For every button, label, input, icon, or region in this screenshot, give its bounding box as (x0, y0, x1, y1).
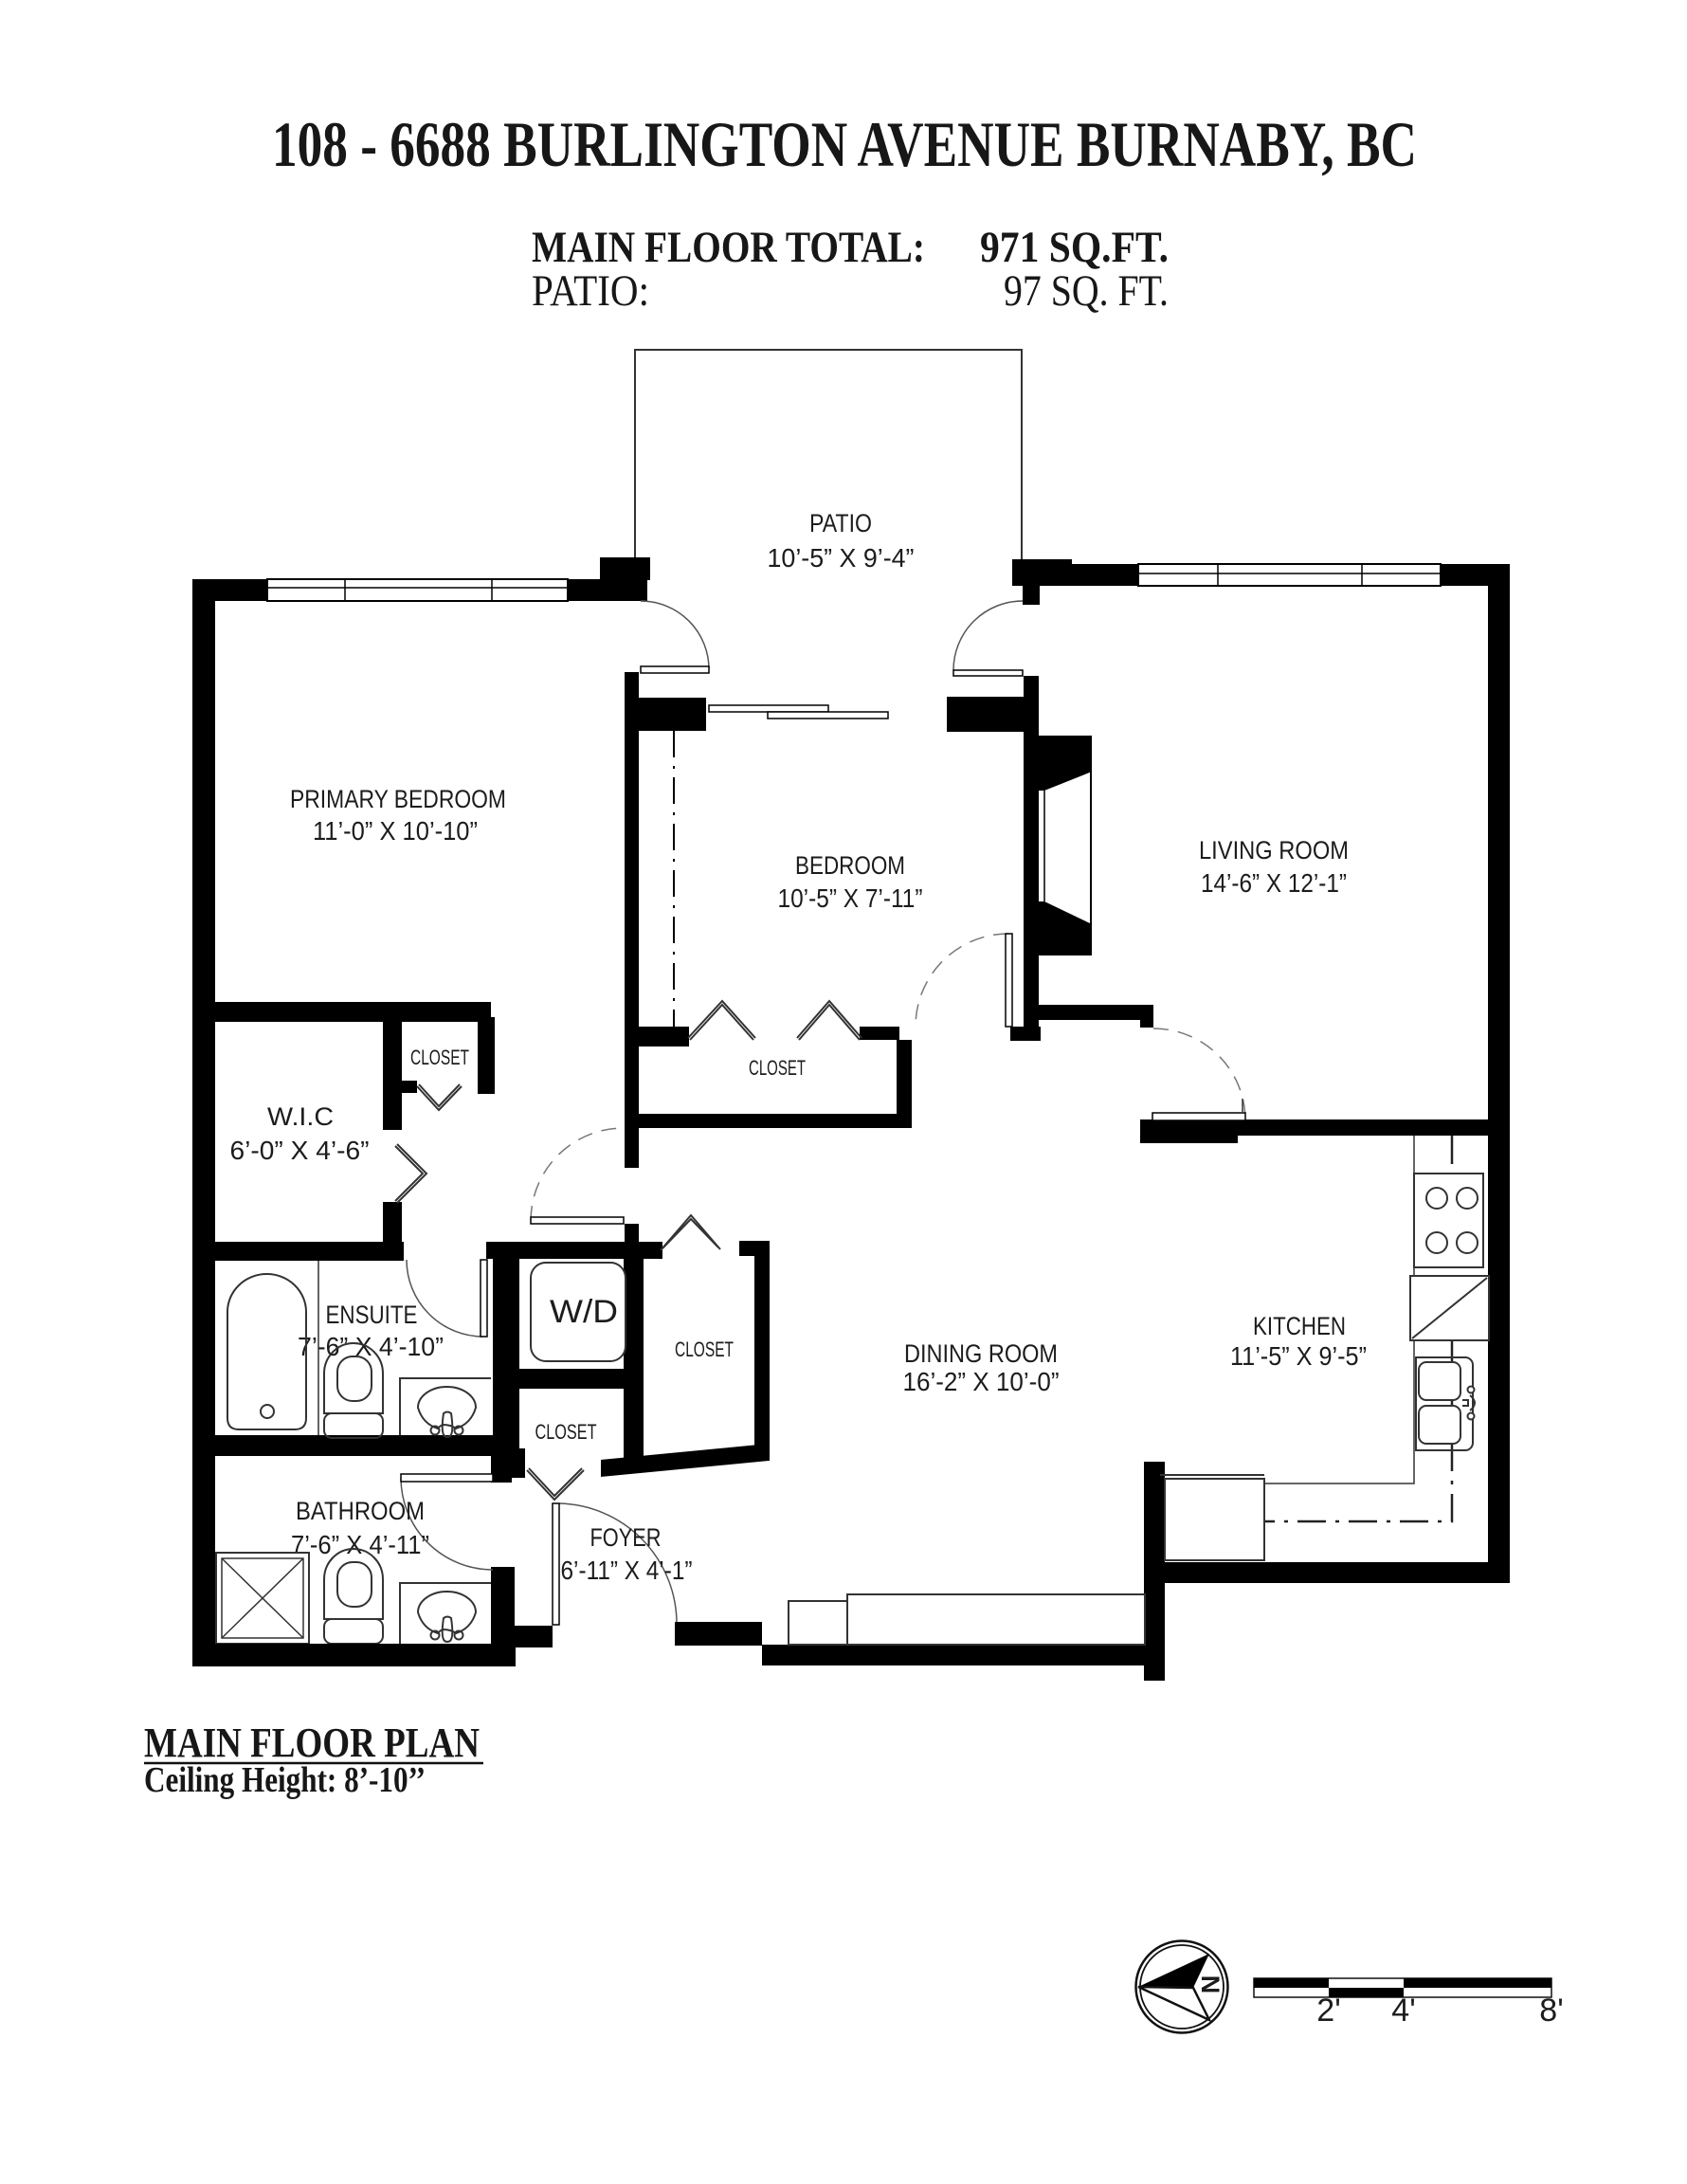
svg-text:FOYER: FOYER (590, 1523, 662, 1552)
svg-text:10’-5” X 9’-4”: 10’-5” X 9’-4” (768, 543, 915, 573)
svg-text:W.I.C: W.I.C (267, 1102, 334, 1131)
svg-text:W/D: W/D (550, 1294, 618, 1330)
svg-text:2': 2' (1316, 1993, 1340, 2029)
svg-text:10’-5” X 7’-11”: 10’-5” X 7’-11” (778, 883, 923, 913)
svg-text:PATIO: PATIO (809, 509, 872, 537)
svg-text:BATHROOM: BATHROOM (296, 1497, 425, 1525)
svg-text:PRIMARY BEDROOM: PRIMARY BEDROOM (290, 785, 506, 813)
svg-text:7’-6” X 4’-11”: 7’-6” X 4’-11” (291, 1530, 429, 1559)
svg-text:PATIO:: PATIO: (532, 266, 649, 316)
svg-text:CLOSET: CLOSET (535, 1420, 597, 1444)
svg-text:DINING ROOM: DINING ROOM (904, 1339, 1058, 1368)
svg-text:CLOSET: CLOSET (675, 1338, 734, 1361)
svg-text:ENSUITE: ENSUITE (326, 1301, 418, 1329)
svg-text:BEDROOM: BEDROOM (795, 851, 905, 880)
svg-text:MAIN FLOOR PLAN: MAIN FLOOR PLAN (144, 1720, 480, 1766)
svg-text:108 - 6688 BURLINGTON AVENUE B: 108 - 6688 BURLINGTON AVENUE BURNABY, BC (272, 108, 1417, 180)
svg-text:7’-6” X 4’-10”: 7’-6” X 4’-10” (298, 1332, 444, 1361)
svg-text:CLOSET: CLOSET (410, 1046, 469, 1069)
svg-text:KITCHEN: KITCHEN (1253, 1312, 1346, 1340)
svg-text:CLOSET: CLOSET (749, 1056, 806, 1080)
svg-text:MAIN FLOOR TOTAL:: MAIN FLOOR TOTAL: (532, 223, 925, 272)
svg-text:16’-2” X 10’-0”: 16’-2” X 10’-0” (903, 1367, 1060, 1396)
svg-text:6’-0” X 4’-6”: 6’-0” X 4’-6” (230, 1136, 370, 1165)
svg-text:4': 4' (1391, 1993, 1415, 2029)
svg-text:N: N (1196, 1975, 1224, 1994)
svg-text:Ceiling Height: 8’-10’’: Ceiling Height: 8’-10’’ (144, 1760, 426, 1800)
svg-text:LIVING ROOM: LIVING ROOM (1199, 836, 1349, 864)
svg-text:97 SQ. FT.: 97 SQ. FT. (1004, 266, 1169, 316)
svg-text:6’-11” X 4’-1”: 6’-11” X 4’-1” (561, 1556, 693, 1585)
svg-text:14’-6” X 12’-1”: 14’-6” X 12’-1” (1201, 868, 1347, 898)
svg-text:8': 8' (1539, 1993, 1563, 2029)
svg-text:11’-5” X 9’-5”: 11’-5” X 9’-5” (1230, 1341, 1367, 1371)
svg-text:11’-0” X 10’-10”: 11’-0” X 10’-10” (313, 816, 478, 846)
svg-text:971 SQ.FT.: 971 SQ.FT. (980, 223, 1169, 272)
